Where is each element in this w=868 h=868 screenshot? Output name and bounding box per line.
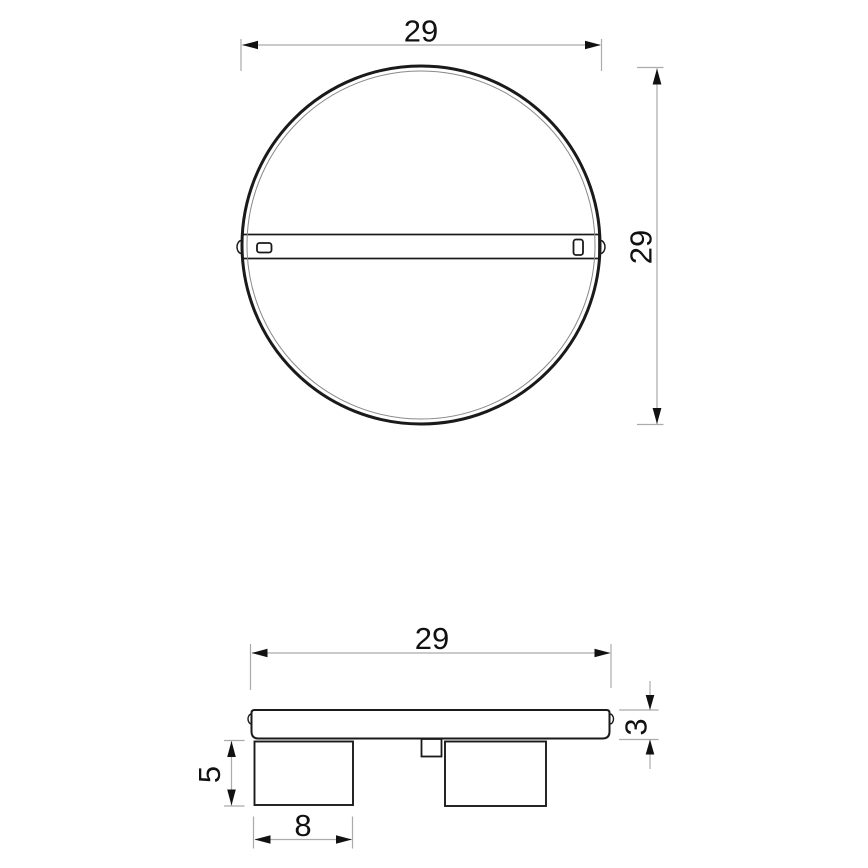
spot-height-dimension: 5 xyxy=(192,741,245,807)
spot-width-dimension: 8 xyxy=(254,808,353,849)
arrowhead-up-icon xyxy=(653,69,662,85)
arrowhead-up-icon xyxy=(227,741,236,757)
side-width-dimension: 29 xyxy=(251,621,612,690)
spot-width-value: 8 xyxy=(294,808,311,843)
arrowhead-down-icon xyxy=(653,408,662,424)
arrowhead-down-icon xyxy=(227,790,236,806)
arrowhead-up-icon xyxy=(646,740,655,755)
top-width-dimension: 29 xyxy=(241,14,602,72)
side-width-value: 29 xyxy=(415,621,449,656)
top-view xyxy=(237,66,605,424)
cable-notch xyxy=(422,739,442,757)
technical-drawing: 29 29 29 3 xyxy=(0,0,868,868)
top-height-dimension: 29 xyxy=(624,68,664,425)
right-slot xyxy=(574,240,584,256)
arrowhead-left-icon xyxy=(242,41,258,49)
left-spot-cylinder xyxy=(255,742,354,806)
plate-thickness-value: 3 xyxy=(619,718,654,735)
left-slot xyxy=(257,243,272,253)
arrowhead-right-icon xyxy=(585,41,601,49)
arrowhead-left-icon xyxy=(255,835,271,843)
arrowhead-right-icon xyxy=(336,835,352,843)
arrowhead-down-icon xyxy=(646,695,655,710)
plate-thickness-dimension: 3 xyxy=(619,681,659,769)
side-view xyxy=(248,710,614,806)
mounting-bar xyxy=(243,235,600,259)
top-height-value: 29 xyxy=(624,230,659,264)
arrowhead-right-icon xyxy=(595,649,611,657)
spot-height-value: 5 xyxy=(192,766,227,783)
ceiling-plate xyxy=(252,710,610,739)
arrowhead-left-icon xyxy=(252,649,268,657)
top-width-value: 29 xyxy=(404,14,438,49)
right-spot-cylinder xyxy=(445,742,546,807)
